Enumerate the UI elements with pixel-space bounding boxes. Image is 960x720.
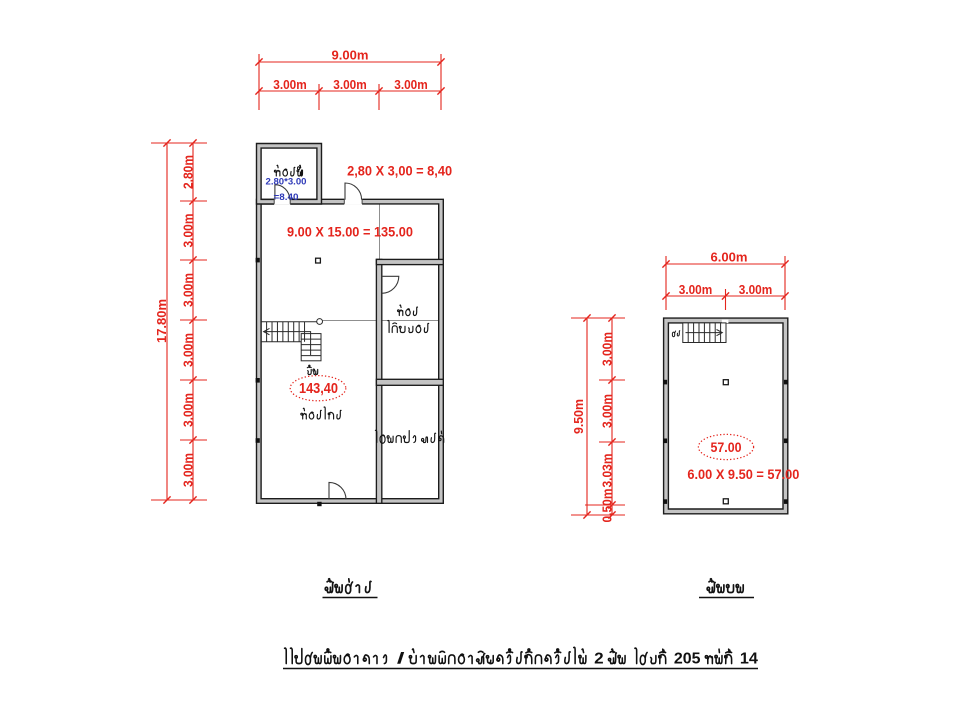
svg-text:3.00m: 3.00m bbox=[679, 283, 713, 297]
svg-text:9.00 X 15.00 = 135.00: 9.00 X 15.00 = 135.00 bbox=[287, 224, 413, 240]
svg-text:9.00m: 9.00m bbox=[332, 48, 369, 63]
svg-text:0.50m: 0.50m bbox=[601, 489, 615, 523]
svg-text:2.80m: 2.80m bbox=[182, 155, 196, 189]
svg-text:3.00m: 3.00m bbox=[601, 394, 615, 428]
svg-text:2.80*3.00: 2.80*3.00 bbox=[266, 176, 307, 187]
svg-text:2,80 X 3,00 = 8,40: 2,80 X 3,00 = 8,40 bbox=[347, 163, 452, 179]
svg-text:14: 14 bbox=[740, 650, 758, 667]
svg-text:9.50m: 9.50m bbox=[572, 399, 586, 434]
svg-text:6.00 X 9.50 = 57.00: 6.00 X 9.50 = 57.00 bbox=[687, 466, 799, 482]
svg-text:205: 205 bbox=[674, 650, 701, 667]
svg-text:3.00m: 3.00m bbox=[182, 214, 196, 248]
svg-text:57.00: 57.00 bbox=[711, 439, 742, 455]
svg-text:3.03m: 3.03m bbox=[601, 454, 615, 488]
svg-text:3.00m: 3.00m bbox=[182, 453, 196, 487]
svg-text:3.00m: 3.00m bbox=[182, 333, 196, 367]
svg-text:/: / bbox=[397, 650, 406, 667]
svg-text:3.00m: 3.00m bbox=[182, 273, 196, 307]
svg-text:3.00m: 3.00m bbox=[333, 78, 367, 92]
svg-text:3.00m: 3.00m bbox=[739, 283, 773, 297]
svg-text:17.80m: 17.80m bbox=[155, 299, 169, 343]
svg-text:=8.40: =8.40 bbox=[274, 192, 299, 203]
svg-text:3.00m: 3.00m bbox=[601, 332, 615, 366]
svg-text:143,40: 143,40 bbox=[299, 381, 338, 397]
svg-text:3.00m: 3.00m bbox=[394, 78, 428, 92]
svg-text:2: 2 bbox=[594, 650, 604, 667]
svg-text:3.00m: 3.00m bbox=[182, 393, 196, 427]
svg-text:3.00m: 3.00m bbox=[273, 78, 307, 92]
svg-text:6.00m: 6.00m bbox=[711, 250, 748, 265]
